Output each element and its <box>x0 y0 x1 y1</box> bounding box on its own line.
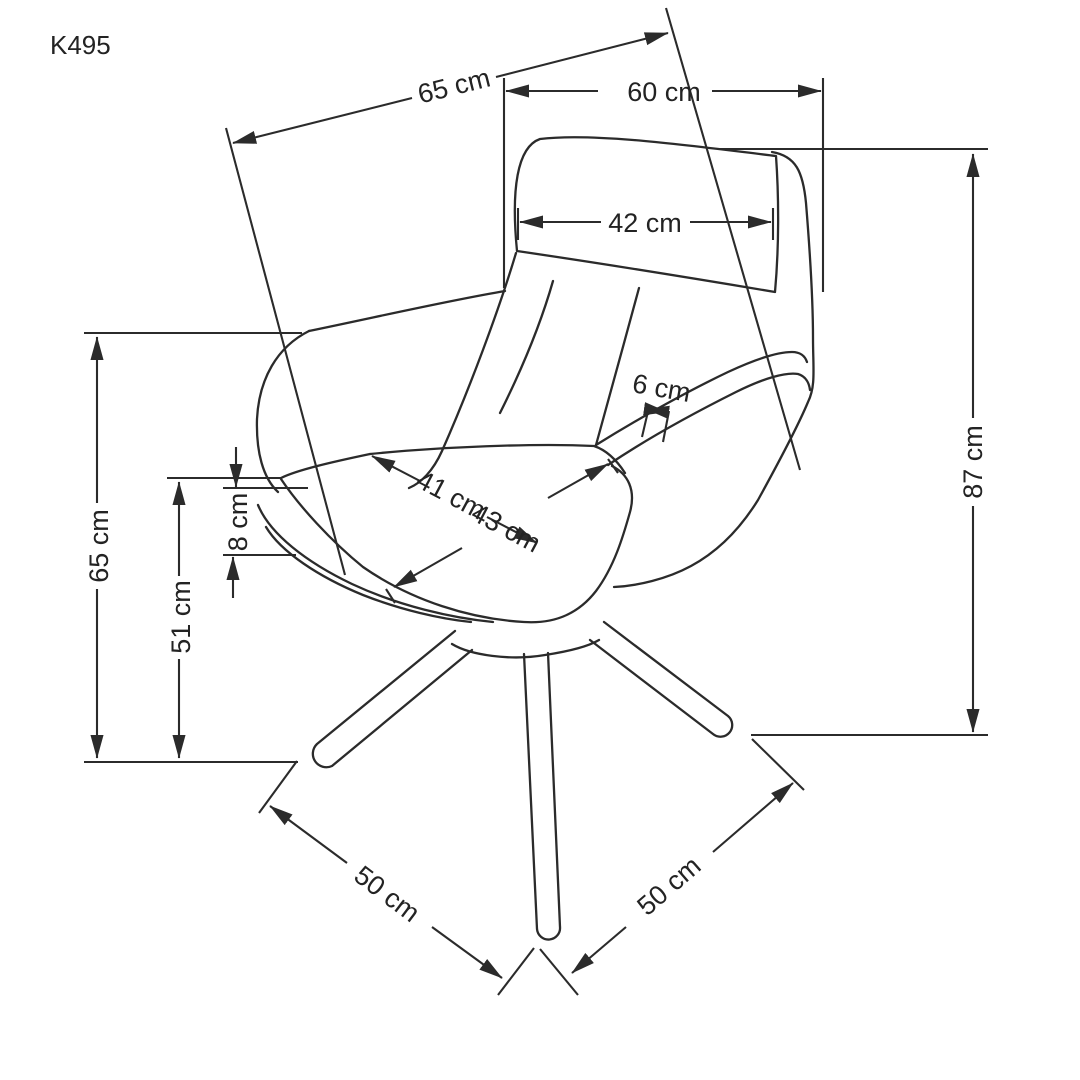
extension-line <box>259 761 297 813</box>
leg-front-center <box>524 653 560 940</box>
dim-overall-height: 87 cm <box>720 149 988 735</box>
armrest-left-top-edge <box>309 291 505 331</box>
diagram-canvas: 65 cm 60 cm 42 cm 87 cm <box>0 0 1080 1080</box>
dim-label-cushion-thickness: 8 cm <box>223 493 253 552</box>
dim-base-span-right: 50 cm <box>540 739 804 995</box>
dim-label-seat-width: 43 cm <box>466 497 545 558</box>
dim-headrest-width: 42 cm <box>518 208 773 240</box>
backrest-left-edge <box>409 253 516 488</box>
chair-dimension-diagram: 65 cm 60 cm 42 cm 87 cm <box>0 0 1080 1080</box>
dim-label-overall-depth: 65 cm <box>415 63 494 110</box>
dim-overall-depth-top: 65 cm <box>226 8 800 575</box>
dim-label-seat-height: 51 cm <box>166 580 196 654</box>
seat-rear-edge <box>370 445 625 473</box>
extension-tick <box>386 589 395 603</box>
leg-front-left <box>313 631 472 767</box>
dim-label-armrest-height: 65 cm <box>84 509 114 583</box>
backrest-seam-left <box>500 281 553 413</box>
backrest-seam-right <box>596 288 639 445</box>
dim-overall-width-top: 60 cm <box>504 77 823 292</box>
armrest-band-top-edge <box>596 352 807 445</box>
seat-shell-edge-outer <box>258 505 493 622</box>
seat-shell-edge-lower <box>266 527 471 622</box>
extension-tick <box>663 411 669 442</box>
dim-label-headrest-width: 42 cm <box>608 208 682 238</box>
extension-line <box>752 739 804 790</box>
product-code-label: K495 <box>50 30 111 60</box>
dim-label-armrest-top-width: 6 cm <box>630 368 693 408</box>
dim-label-base-span-left: 50 cm <box>349 860 426 928</box>
extension-line <box>498 948 534 995</box>
dim-label-base-span-right: 50 cm <box>631 851 706 922</box>
leg-right <box>590 622 732 737</box>
seat-left-edge <box>281 454 370 478</box>
dimension-annotations: 65 cm 60 cm 42 cm 87 cm <box>84 8 988 995</box>
dim-label-overall-width: 60 cm <box>627 77 701 107</box>
dim-label-overall-height: 87 cm <box>958 425 988 499</box>
dim-cushion-thickness: 8 cm <box>223 447 308 598</box>
base-hub <box>452 640 599 657</box>
extension-tick <box>642 407 649 437</box>
dim-base-span-left: 50 cm <box>259 761 534 995</box>
dim-armrest-height: 65 cm <box>84 333 302 762</box>
